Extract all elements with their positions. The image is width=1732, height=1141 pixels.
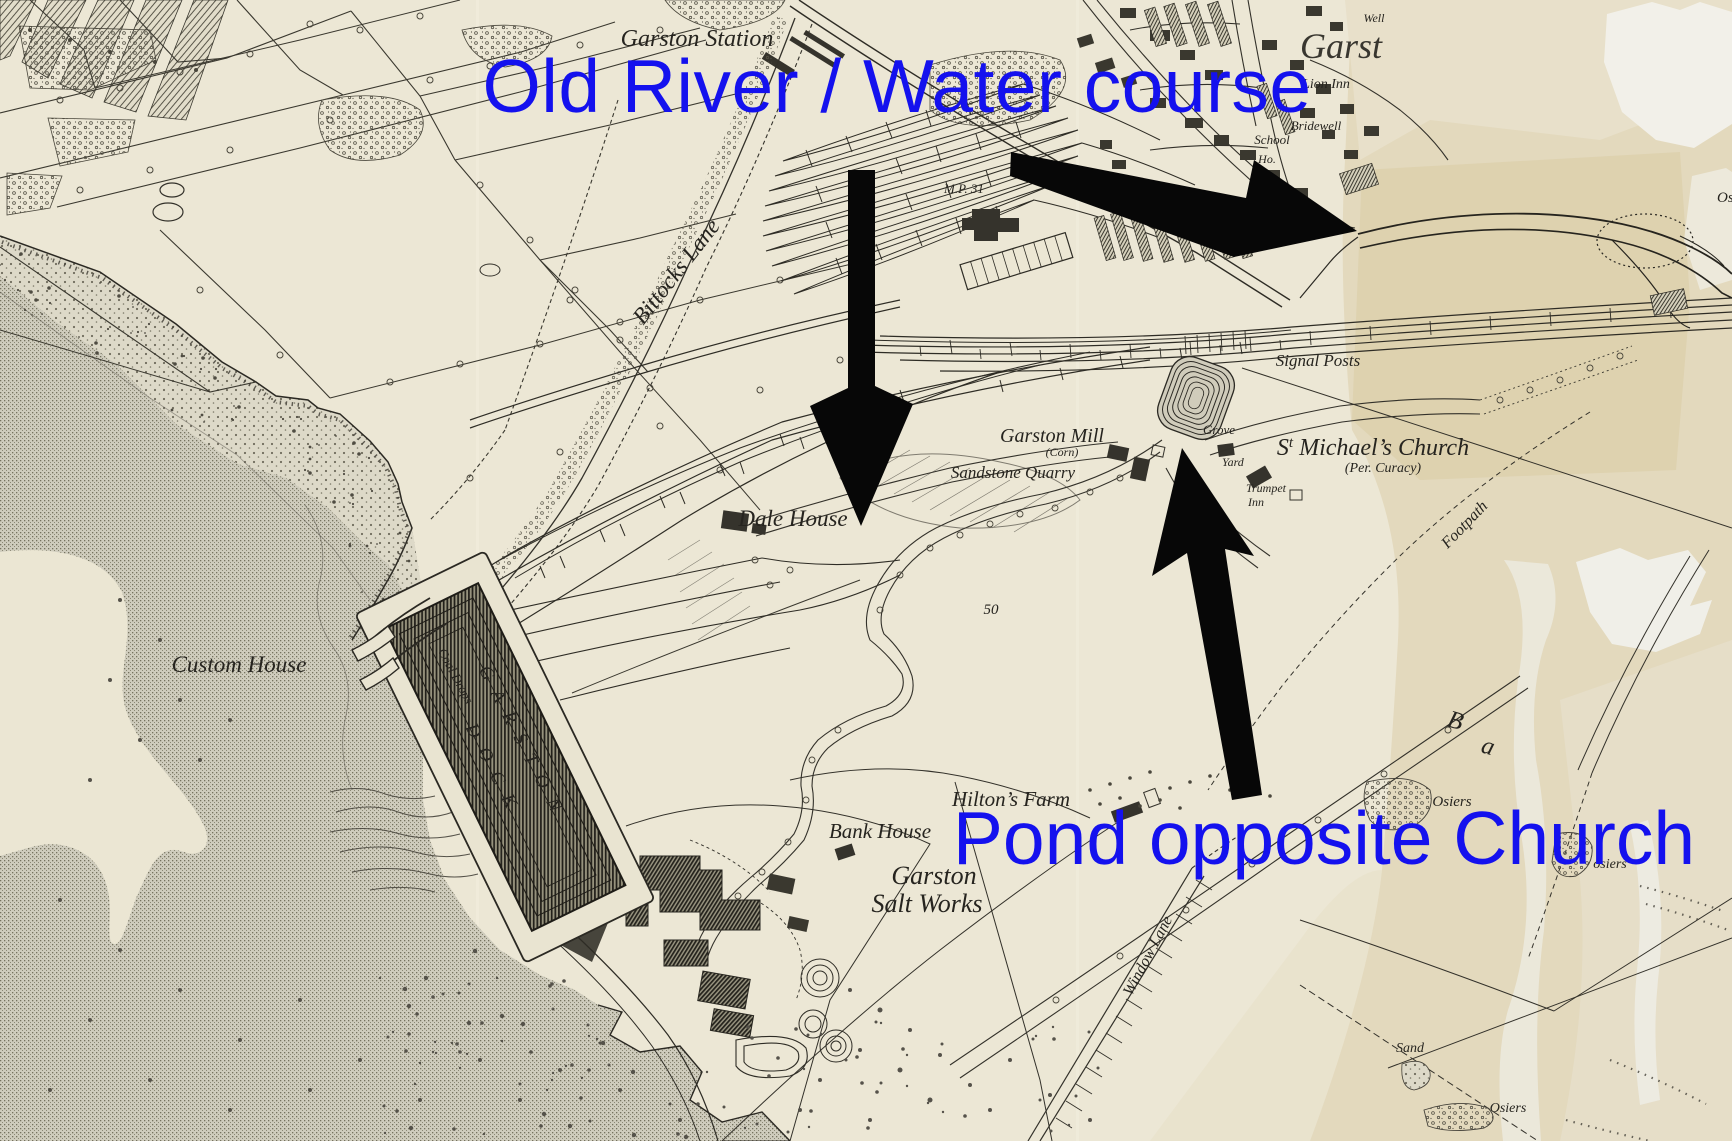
svg-text:Well: Well <box>1364 11 1386 25</box>
svg-text:50: 50 <box>984 602 1000 618</box>
svg-text:Trumpet: Trumpet <box>1246 481 1287 495</box>
svg-text:Salt Works: Salt Works <box>872 889 983 918</box>
svg-text:Signal Posts: Signal Posts <box>1276 351 1361 370</box>
svg-text:Bank House: Bank House <box>829 819 931 843</box>
svg-text:Grove: Grove <box>1203 422 1235 437</box>
svg-text:Dale House: Dale House <box>737 506 847 531</box>
svg-text:Old River / Water course: Old River / Water course <box>482 44 1311 128</box>
svg-text:Custom House: Custom House <box>172 652 307 677</box>
svg-text:Sand: Sand <box>1396 1041 1425 1056</box>
svg-text:Yard: Yard <box>1222 455 1245 469</box>
svg-text:Ho.: Ho. <box>1257 152 1276 166</box>
svg-text:Garst: Garst <box>1300 26 1383 66</box>
svg-text:(Per. Curacy): (Per. Curacy) <box>1345 461 1422 476</box>
svg-text:St Michael’s Church: St Michael’s Church <box>1277 435 1469 461</box>
svg-text:Sandstone Quarry: Sandstone Quarry <box>951 463 1076 482</box>
svg-text:(Corn): (Corn) <box>1046 445 1079 459</box>
svg-text:Inn: Inn <box>1247 495 1264 509</box>
svg-text:School: School <box>1254 132 1290 147</box>
svg-text:M.P. 31: M.P. 31 <box>943 181 984 196</box>
svg-text:Garston Mill: Garston Mill <box>1000 425 1104 447</box>
svg-text:Osiers: Osiers <box>1490 1101 1527 1116</box>
svg-text:Osi: Osi <box>1717 190 1732 206</box>
svg-text:Pond opposite Church: Pond opposite Church <box>953 796 1695 880</box>
